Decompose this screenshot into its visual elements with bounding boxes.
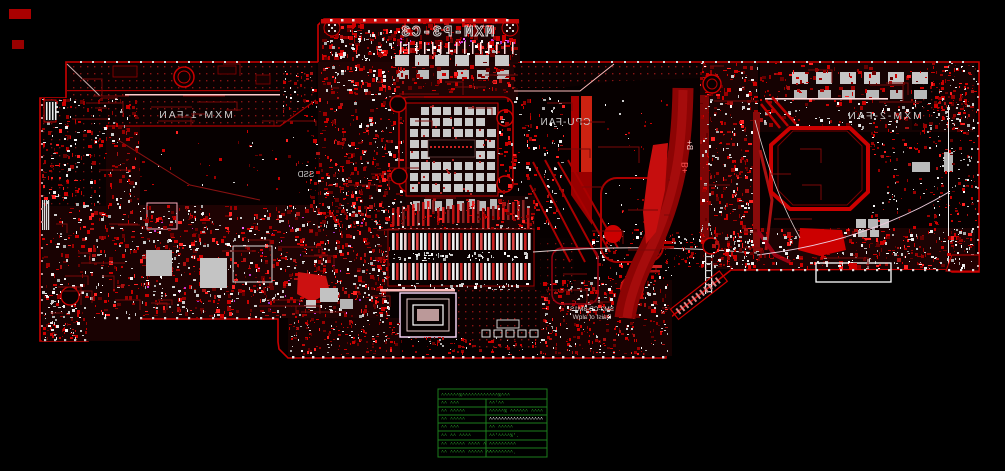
svg-text:MXM-P3-C3: MXM-P3-C3 — [400, 24, 495, 41]
svg-text:Daisf of alqW: Daisf of alqW — [572, 314, 612, 321]
svg-text:MXM-2-FAN: MXM-2-FAN — [846, 110, 922, 122]
svg-text:B+: B+ — [680, 162, 690, 173]
svg-text:SSD: SSD — [298, 170, 315, 179]
svg-text:SM2-CD-8M1S: SM2-CD-8M1S — [569, 306, 614, 313]
svg-text:B+: B+ — [685, 140, 694, 150]
